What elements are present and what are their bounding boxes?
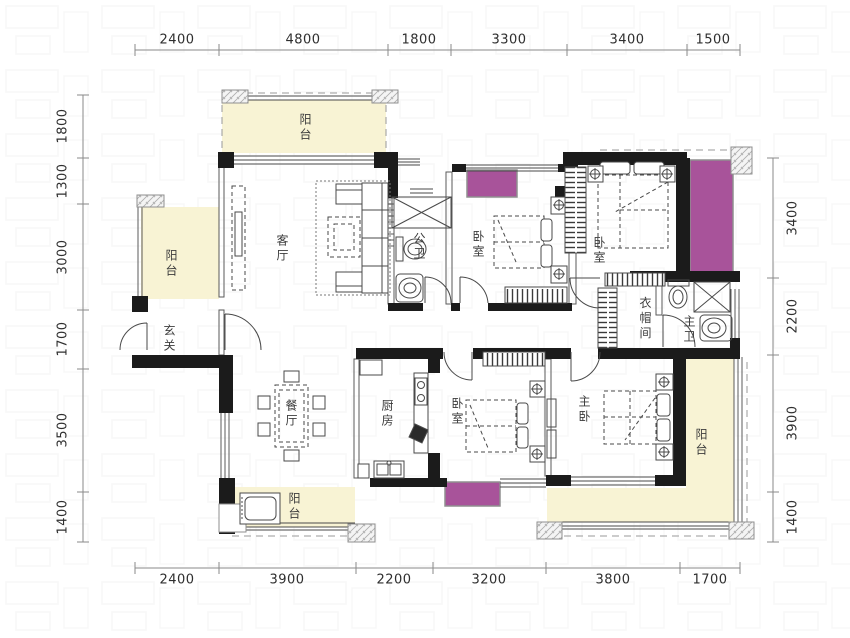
room-label-dining-room: 餐厅 [285,399,297,429]
dim-right-4: 1400 [786,499,801,534]
dim-top-2: 4800 [285,33,320,48]
dim-left-1: 1800 [56,108,71,143]
room-label-master-bath: 主卫 [683,315,695,345]
room-label-balcony-top: 阳台 [299,113,311,143]
dim-right-3: 3900 [786,405,801,440]
dim-bottom-4: 3200 [471,573,506,588]
dim-left-5: 3500 [56,412,71,447]
dim-top-4: 3300 [491,33,526,48]
dim-top-5: 3400 [609,33,644,48]
dim-bottom-6: 1700 [692,573,727,588]
washing-machine [240,493,280,524]
room-label-cloakroom: 衣帽间 [639,297,651,342]
room-label-balcony-right: 阳台 [695,428,707,458]
dim-left-2: 1300 [56,163,71,198]
background-watermark [0,0,850,638]
room-label-balcony-bottom: 阳台 [288,492,300,522]
dim-bottom-2: 3900 [269,573,304,588]
room-label-balcony-left: 阳台 [165,249,177,279]
room-label-public-bath: 公卫 [413,232,425,262]
room-label-bedroom-c: 卧室 [451,397,463,427]
dim-left-4: 1700 [56,321,71,356]
dim-bottom-1: 2400 [159,573,194,588]
room-label-bedroom-b: 卧室 [593,236,605,266]
dim-right-2: 2200 [786,298,801,333]
room-label-foyer: 玄关 [163,324,175,354]
room-label-living-room: 客厅 [276,234,288,264]
dim-left-3: 3000 [56,239,71,274]
dim-top-3: 1800 [401,33,436,48]
room-label-master-bedroom: 主卧 [578,395,590,425]
floor-plan-canvas [0,0,850,638]
dim-right-1: 3400 [786,200,801,235]
dim-bottom-3: 2200 [376,573,411,588]
dim-left-6: 1400 [56,499,71,534]
floor-plan-page: 阳台 阳台 客厅 公卫 卧室 卧室 玄关 餐厅 厨房 卧室 主卧 衣帽间 主卫 … [0,0,850,638]
room-label-kitchen: 厨房 [381,399,393,429]
room-label-bedroom-a: 卧室 [472,230,484,260]
dim-top-1: 2400 [159,33,194,48]
dim-top-6: 1500 [695,33,730,48]
dim-bottom-5: 3800 [595,573,630,588]
kitchen-sink [374,461,404,478]
